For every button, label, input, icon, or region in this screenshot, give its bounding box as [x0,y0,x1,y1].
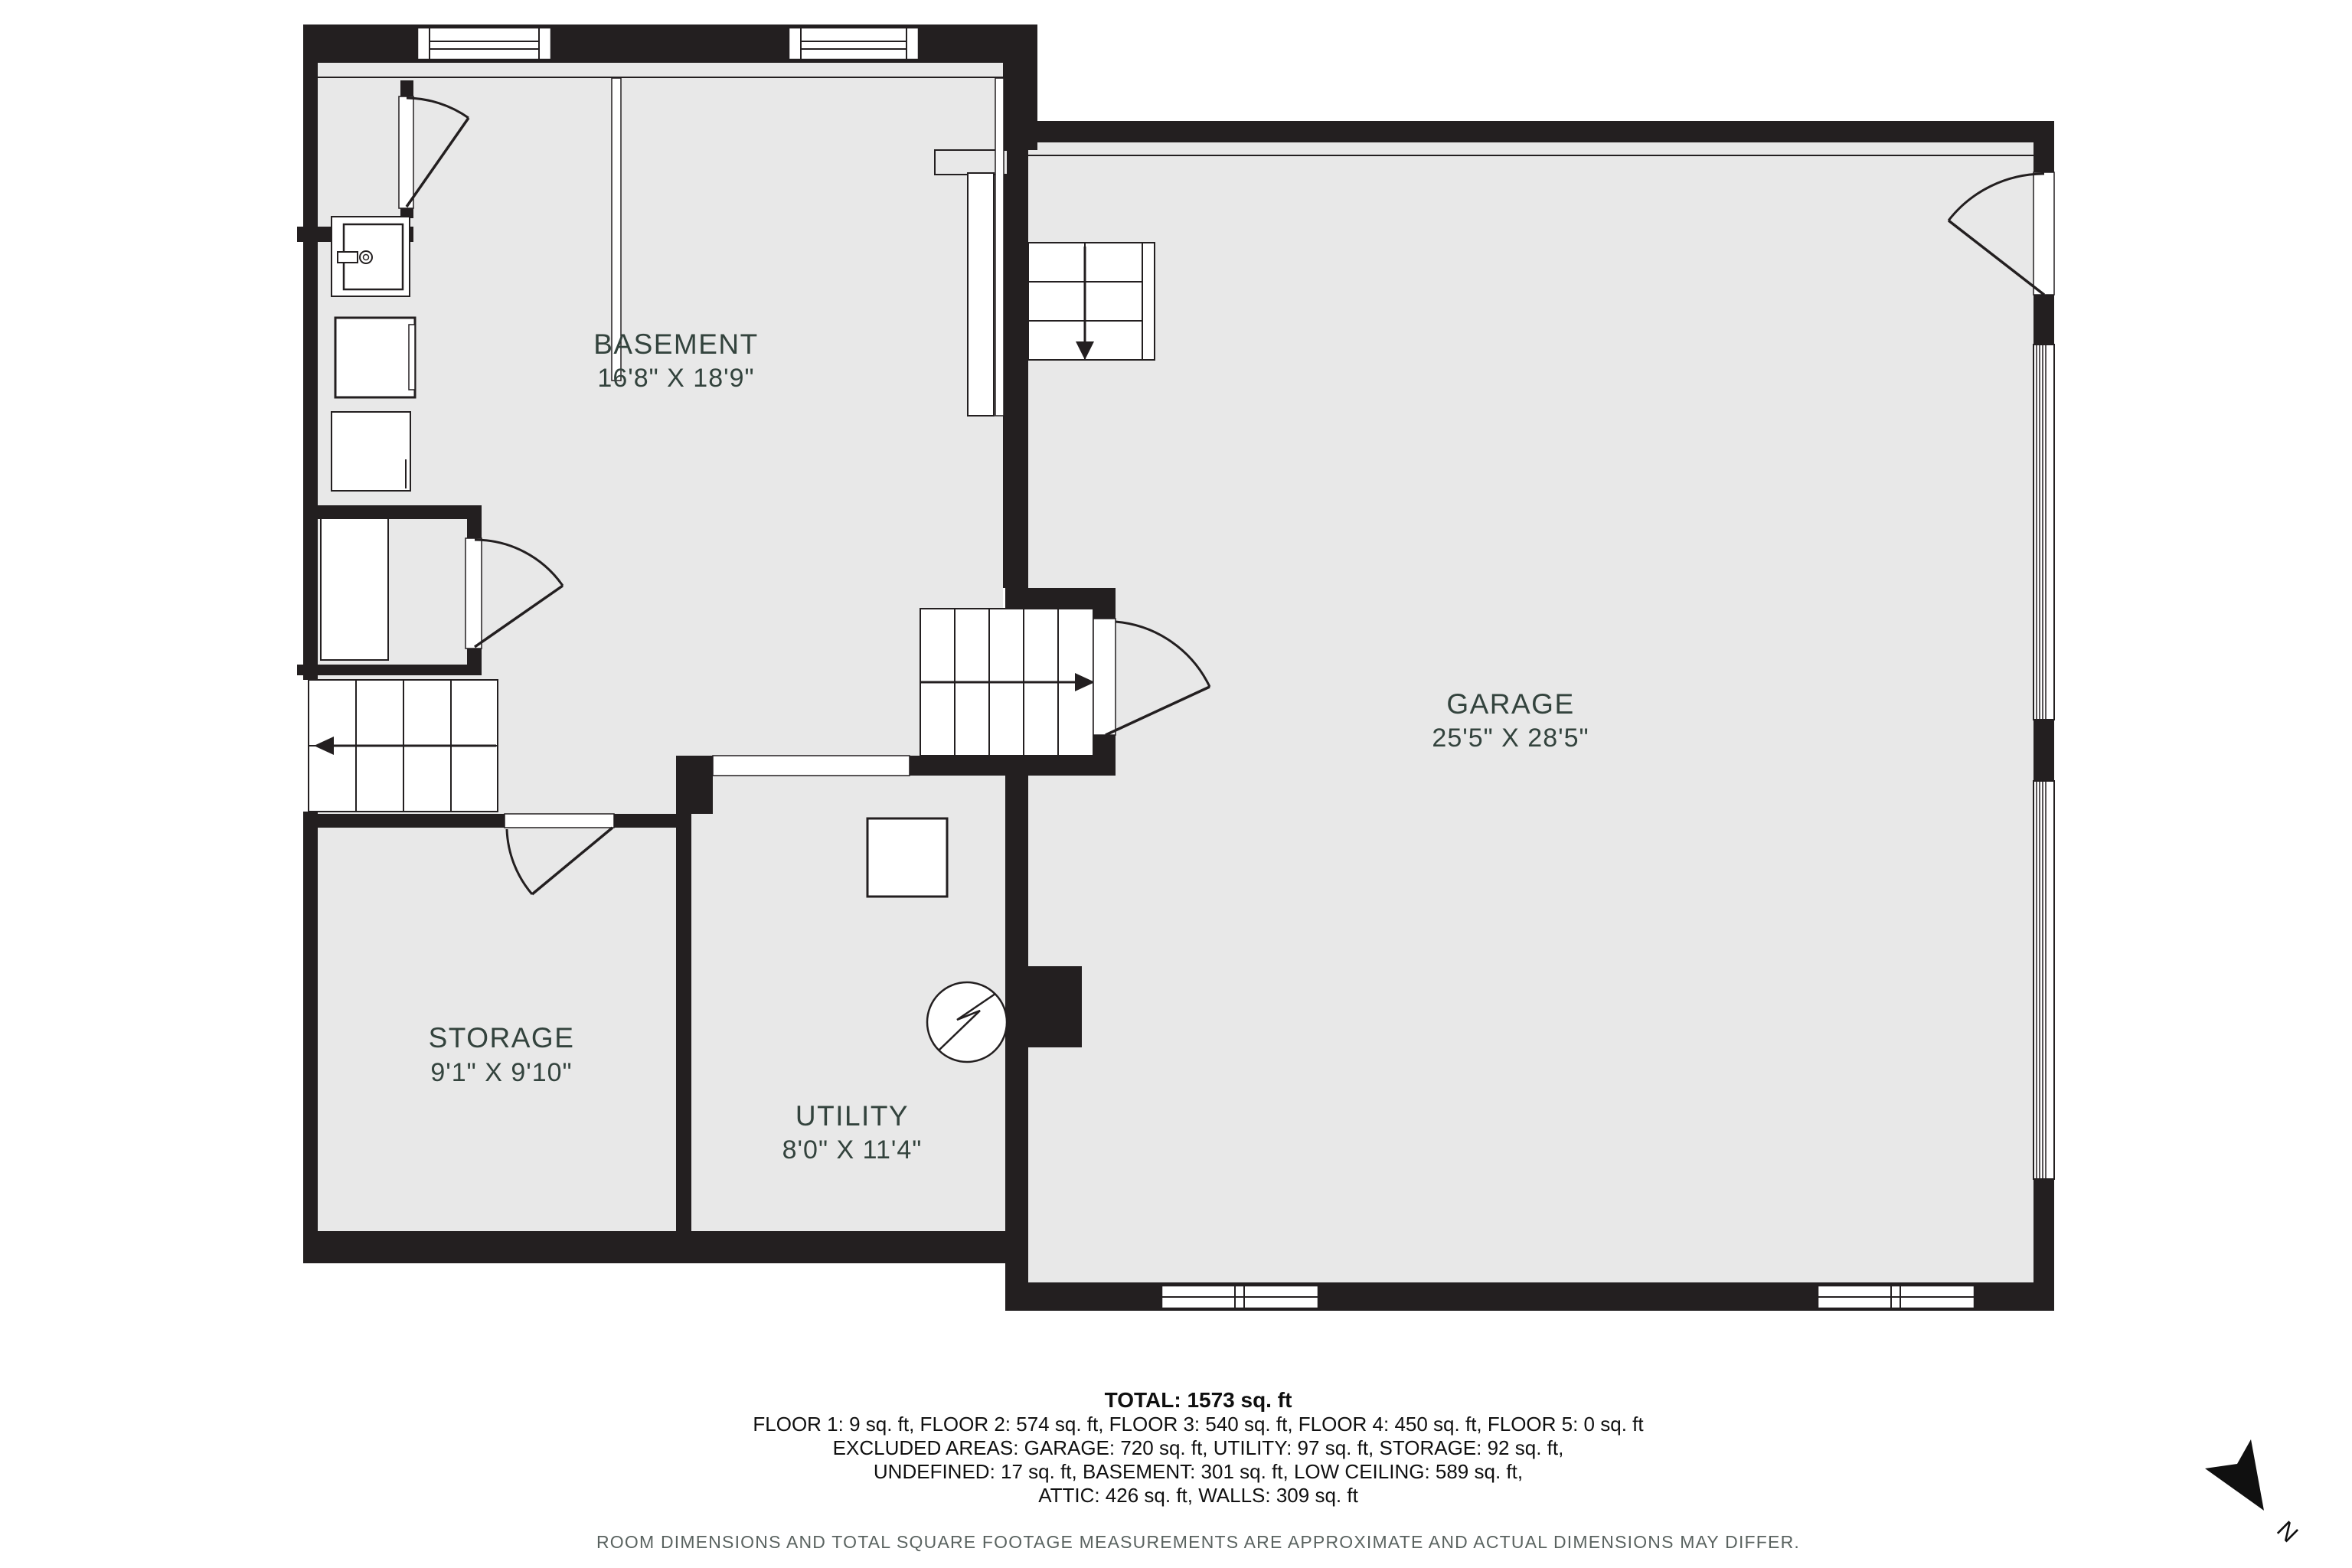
electrical-panel-icon [927,982,1007,1062]
utility-dims: 8'0" X 11'4" [782,1135,923,1165]
window-garage-bottom-2 [1818,1285,1975,1308]
storage-dims: 9'1" X 9'10" [430,1058,572,1087]
utility-label: UTILITY [795,1100,909,1132]
floorplan-canvas: BASEMENT 16'8" X 18'9" GARAGE 25'5" X 28… [0,0,2352,1568]
summary-line-3: UNDEFINED: 17 sq. ft, BASEMENT: 301 sq. … [874,1460,1523,1483]
summary-line-1: FLOOR 1: 9 sq. ft, FLOOR 2: 574 sq. ft, … [753,1413,1644,1436]
chimney-chase [968,173,994,416]
wall-storage-top [305,814,689,828]
window-basement-1 [417,28,551,60]
wall-utility-garage [1005,768,1028,1311]
wall-panel-block [1027,966,1082,1047]
window-garage-right-2 [2033,781,2054,1179]
wall-garage-right-a [2033,295,2054,345]
dryer [335,318,415,397]
wall-closet-top [315,505,482,519]
wall-bottom-left-section [305,1231,1028,1263]
basement-label: BASEMENT [593,328,759,360]
utility-appliance [867,818,947,897]
summary-text: TOTAL: 1573 sq. ft FLOOR 1: 9 sq. ft, FL… [596,1388,1800,1552]
floor-areas [318,63,2033,1282]
north-label: N [2272,1515,2304,1547]
storage-label: STORAGE [429,1022,575,1053]
freezer [332,412,410,491]
summary-line-4: ATTIC: 426 sq. ft, WALLS: 309 sq. ft [1038,1484,1358,1507]
opening-utility [713,756,910,776]
wall-left-upper [303,34,318,680]
wall-garage-top [1003,121,2054,142]
wall-stairs-top [1005,588,1116,609]
window-basement-2 [789,28,919,60]
washer [332,217,410,296]
wall-garage-right-b [2033,720,2054,781]
wall-stairs-bottom [910,756,1116,776]
summary-total: TOTAL: 1573 sq. ft [1105,1388,1292,1412]
basement-dims: 16'8" X 18'9" [597,364,754,393]
stairs-center [920,609,1095,756]
summary-line-2: EXCLUDED AREAS: GARAGE: 720 sq. ft, UTIL… [833,1436,1564,1459]
stairs-garage-down [1028,243,1155,360]
window-garage-bottom-1 [1161,1285,1318,1308]
wall-left-lower [303,812,318,1263]
wall-utility-left [676,814,691,1231]
wall-doorframe-bottom [1093,735,1116,756]
closet-shelf [321,518,388,660]
wall-basement-garage [1003,63,1028,588]
wall-closet-bottom [297,665,482,675]
disclaimer-text: ROOM DIMENSIONS AND TOTAL SQUARE FOOTAGE… [596,1532,1800,1552]
wall-face-channel [995,78,1004,416]
stairs-left [309,680,498,812]
wall-garage-right-bottom [2033,1179,2054,1311]
floorplan-page: BASEMENT 16'8" X 18'9" GARAGE 25'5" X 28… [0,0,2352,1568]
wall-basement-top [303,24,1037,63]
north-arrow-icon [2205,1439,2264,1511]
garage-label: GARAGE [1446,688,1574,720]
stairs-garage-landing [1142,243,1155,360]
compass: N [2205,1439,2304,1547]
wall-garage-right-top [2033,121,2054,172]
window-garage-right-1 [2033,345,2054,720]
wall-utility-left-block [676,756,713,814]
garage-dims: 25'5" X 28'5" [1432,724,1589,753]
